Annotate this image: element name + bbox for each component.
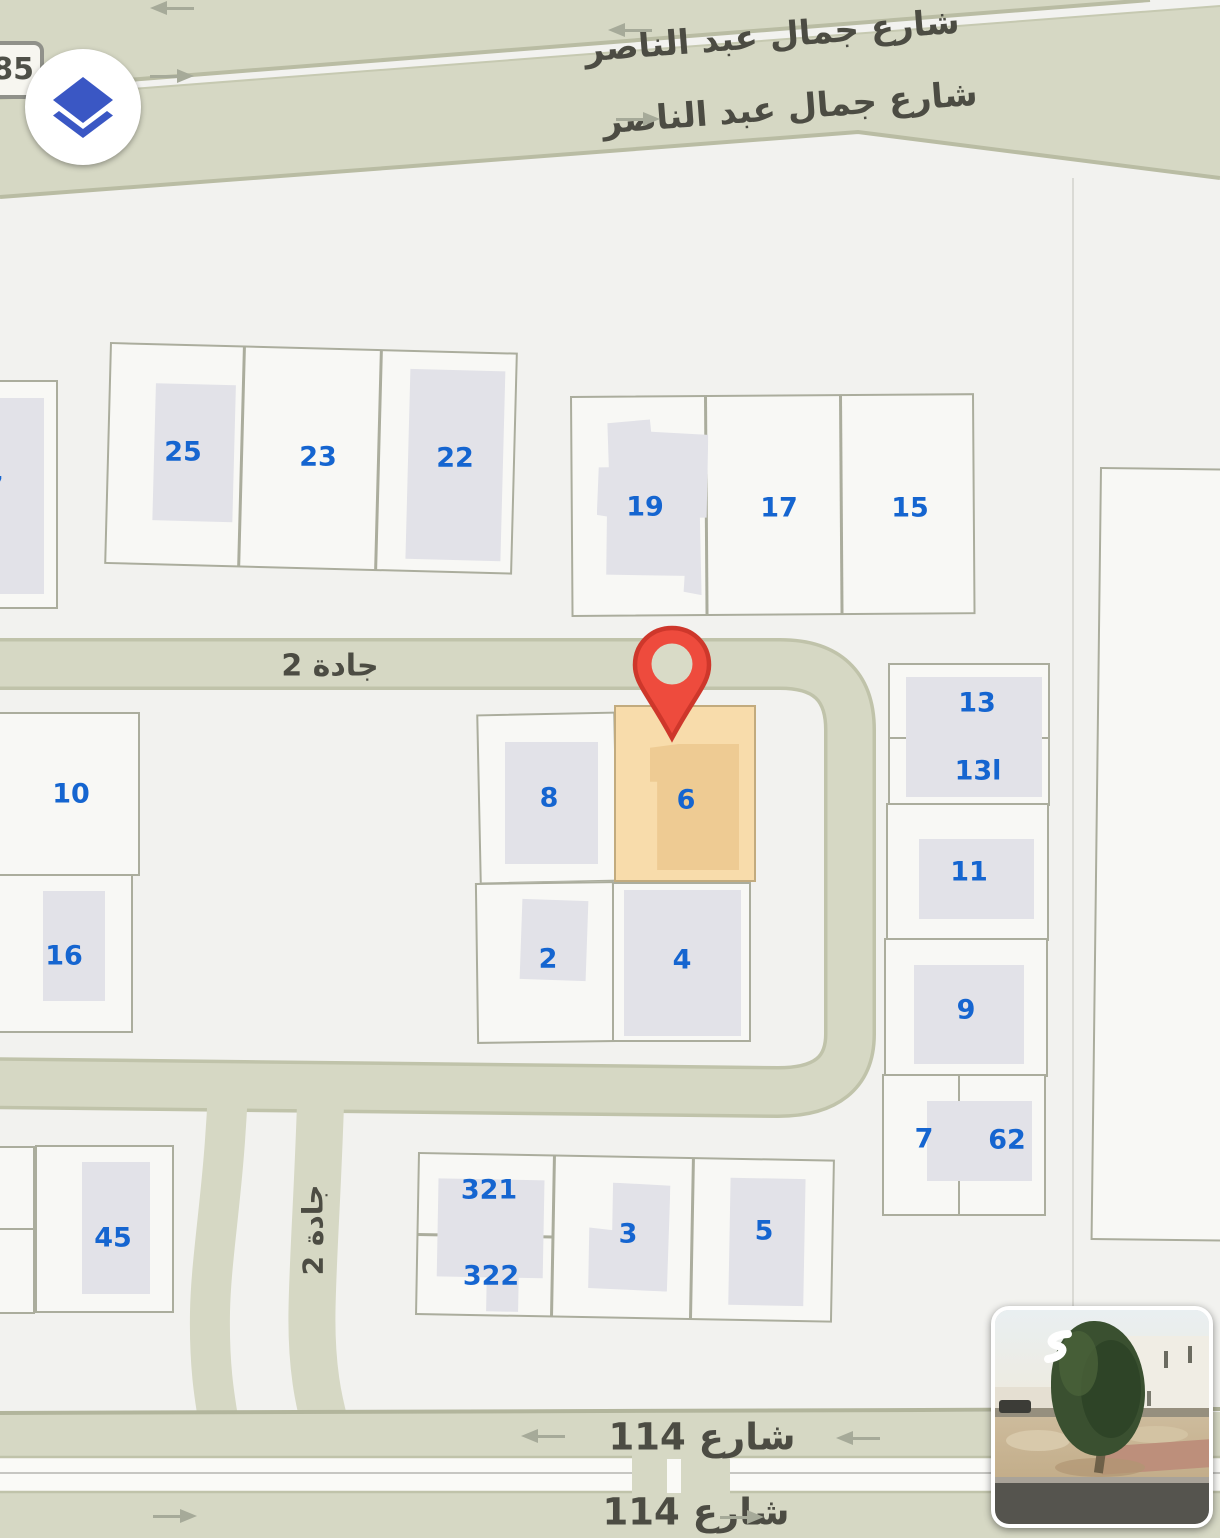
road-direction-arrow	[610, 23, 656, 37]
parcel-label: 45	[94, 1223, 132, 1254]
building	[0, 398, 44, 594]
road-direction-arrow	[612, 112, 658, 126]
road-direction-arrow	[146, 69, 192, 83]
parcel-label: 23	[299, 442, 337, 473]
parcel-divider	[374, 350, 382, 570]
parcel-west-neighbor-lower[interactable]	[0, 1228, 35, 1314]
street-label-jaddah2-vertical: جادة 2	[297, 1185, 330, 1276]
parcel-label: 15	[891, 493, 929, 524]
parcel-label: 4	[673, 945, 692, 976]
parcel-divider	[689, 1158, 694, 1319]
parcel-label: 321	[461, 1175, 517, 1206]
location-pin[interactable]	[618, 622, 726, 746]
parcel-label: 13ا	[955, 756, 1002, 787]
parcel-label: 10	[52, 779, 90, 810]
layers-button[interactable]	[25, 49, 141, 165]
parcel-label: 17	[760, 493, 798, 524]
map-canvas[interactable]: 7 25 23 22 19 17 15 10 16 8 6 2 4 13 13ا…	[0, 0, 1220, 1538]
sv-window	[1188, 1346, 1192, 1363]
sv-window	[1164, 1351, 1168, 1368]
parcel-label: 13	[958, 688, 996, 719]
sv-dark-object	[999, 1400, 1031, 1413]
parcel-divider	[237, 346, 245, 566]
sv-white-squiggle	[1034, 1327, 1078, 1371]
road-direction-arrow	[149, 1509, 195, 1523]
sv-road	[995, 1483, 1209, 1524]
parcel-label: 322	[463, 1261, 519, 1292]
street-label-jaddah2-horizontal: جادة 2	[281, 649, 378, 684]
parcel-west-neighbor-upper[interactable]	[0, 1146, 35, 1230]
parcel-label: 6	[677, 785, 696, 816]
parcel-divider	[839, 395, 843, 614]
parcel-label: 3	[619, 1219, 638, 1250]
sv-window	[1147, 1391, 1151, 1406]
parcel-label: 5	[755, 1216, 774, 1247]
parcel-label: 8	[540, 783, 559, 814]
parcel-label: 7	[915, 1124, 934, 1155]
street-view-thumbnail[interactable]	[991, 1306, 1213, 1528]
parcel-label: 9	[957, 995, 976, 1026]
road-direction-arrow	[523, 1429, 569, 1443]
layers-icon	[50, 74, 116, 140]
parcel-label: 16	[45, 941, 83, 972]
parcel-label: 7	[0, 472, 3, 503]
road-direction-arrow	[152, 1, 198, 15]
parcel-label: 19	[626, 492, 664, 523]
road-direction-arrow	[716, 1510, 762, 1524]
street-label-114-top: شارع 114	[609, 1416, 796, 1459]
road-direction-arrow	[838, 1431, 884, 1445]
parcel-label: 22	[436, 443, 474, 474]
parcel-label: 2	[539, 944, 558, 975]
parcel-label: 62	[988, 1125, 1026, 1156]
sv-ground-patch	[1006, 1430, 1070, 1451]
parcel-label: 11	[950, 857, 988, 888]
parcel-east-large[interactable]	[1091, 467, 1220, 1242]
parcel-label: 25	[164, 437, 202, 468]
block-boundary-line	[1072, 178, 1074, 1412]
